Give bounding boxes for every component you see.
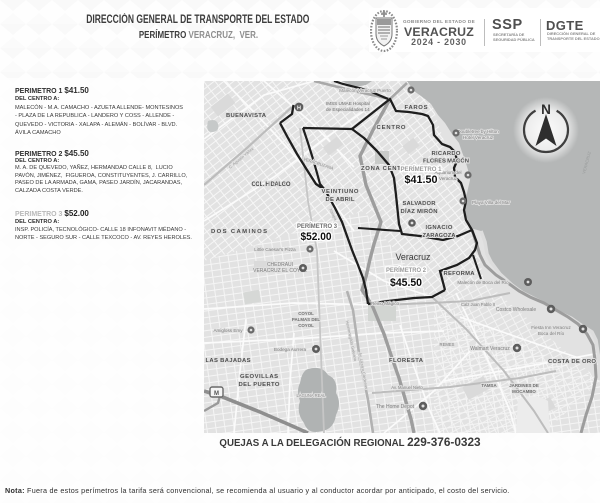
- svg-text:Fiesta Inn Veracruz: Fiesta Inn Veracruz: [531, 325, 571, 330]
- svg-text:$45.50: $45.50: [390, 277, 422, 289]
- svg-text:ZARAGOZA: ZARAGOZA: [423, 233, 457, 239]
- svg-text:M: M: [214, 391, 219, 397]
- svg-text:REFORMA: REFORMA: [444, 271, 476, 277]
- svg-text:Veracruz: Veracruz: [439, 176, 458, 181]
- svg-text:LAGUNA REAL: LAGUNA REAL: [296, 393, 326, 398]
- svg-text:TAMSA: TAMSA: [481, 383, 497, 388]
- svg-text:DE ABRIL: DE ABRIL: [326, 197, 355, 203]
- svg-text:PALMAS DEL: PALMAS DEL: [292, 317, 321, 322]
- svg-text:COSTA DE ORO: COSTA DE ORO: [548, 359, 596, 365]
- svg-text:Boca del Río: Boca del Río: [538, 331, 565, 336]
- svg-text:MOCAMBO: MOCAMBO: [512, 389, 536, 394]
- svg-text:PERÍMETRO 1: PERÍMETRO 1: [401, 164, 442, 173]
- svg-text:Malecón Veracruz Puerto: Malecón Veracruz Puerto: [339, 88, 391, 93]
- svg-text:FLORES MAGÓN: FLORES MAGÓN: [423, 157, 469, 165]
- svg-text:Hotel Veracruz: Hotel Veracruz: [463, 135, 494, 140]
- svg-text:de Especialidades 14: de Especialidades 14: [326, 107, 370, 112]
- svg-text:JARDINES DE: JARDINES DE: [509, 383, 539, 388]
- svg-text:Calz Juan Pablo II: Calz Juan Pablo II: [461, 302, 495, 307]
- svg-text:Malecón de Boca del Río: Malecón de Boca del Río: [457, 280, 509, 285]
- svg-text:IGNACIO: IGNACIO: [426, 225, 453, 231]
- svg-text:COYOL: COYOL: [298, 323, 314, 328]
- svg-text:DOS CAMINOS: DOS CAMINOS: [211, 229, 267, 235]
- svg-text:GEOVILLAS: GEOVILLAS: [240, 374, 278, 380]
- svg-text:Amigloss Emy: Amigloss Emy: [213, 328, 243, 333]
- svg-text:The Home Depot: The Home Depot: [376, 404, 415, 410]
- svg-text:Walmart Veracruz: Walmart Veracruz: [470, 346, 510, 352]
- svg-text:Little Caesar's Pizza: Little Caesar's Pizza: [254, 247, 296, 252]
- svg-text:H: H: [297, 105, 301, 111]
- svg-text:Bodega Aurrera: Bodega Aurrera: [274, 347, 307, 352]
- svg-text:VERACRUZ EL COYOL: VERACRUZ EL COYOL: [253, 268, 307, 274]
- svg-text:RICARDO: RICARDO: [432, 151, 461, 157]
- svg-text:IMSS UMAE Hospital: IMSS UMAE Hospital: [326, 101, 370, 106]
- svg-text:REMES: REMES: [440, 342, 455, 347]
- svg-text:FAROS: FAROS: [405, 105, 428, 111]
- svg-text:Veracruz: Veracruz: [396, 252, 431, 262]
- svg-text:DEL PUERTO: DEL PUERTO: [239, 382, 280, 388]
- svg-text:Costco Wholesale: Costco Wholesale: [496, 307, 537, 313]
- svg-text:COL. HIDALGO: COL. HIDALGO: [252, 182, 291, 188]
- svg-text:CENTRO: CENTRO: [377, 125, 406, 131]
- svg-text:LAS BAJADAS: LAS BAJADAS: [206, 358, 251, 364]
- svg-text:Doubletree by Hilton: Doubletree by Hilton: [457, 129, 499, 134]
- svg-text:DÍAZ MIRÓN: DÍAZ MIRÓN: [401, 207, 438, 215]
- svg-text:Playa Villa del Mar: Playa Villa del Mar: [472, 200, 510, 205]
- svg-text:$41.50: $41.50: [405, 174, 438, 186]
- svg-text:BUENAVISTA: BUENAVISTA: [226, 113, 267, 119]
- svg-text:Reino Mágico: Reino Mágico: [371, 301, 400, 306]
- svg-text:VEINTIUNO: VEINTIUNO: [322, 189, 359, 195]
- svg-text:PERÍMETRO 2: PERÍMETRO 2: [386, 265, 426, 274]
- svg-text:COYOL: COYOL: [298, 311, 314, 316]
- svg-text:PERÍMETRO 3: PERÍMETRO 3: [297, 221, 337, 230]
- svg-text:$52.00: $52.00: [301, 231, 332, 243]
- svg-text:SALVADOR: SALVADOR: [403, 201, 437, 207]
- svg-text:Av. Manuel Nieto: Av. Manuel Nieto: [391, 385, 423, 390]
- svg-text:FLORESTA: FLORESTA: [389, 358, 424, 364]
